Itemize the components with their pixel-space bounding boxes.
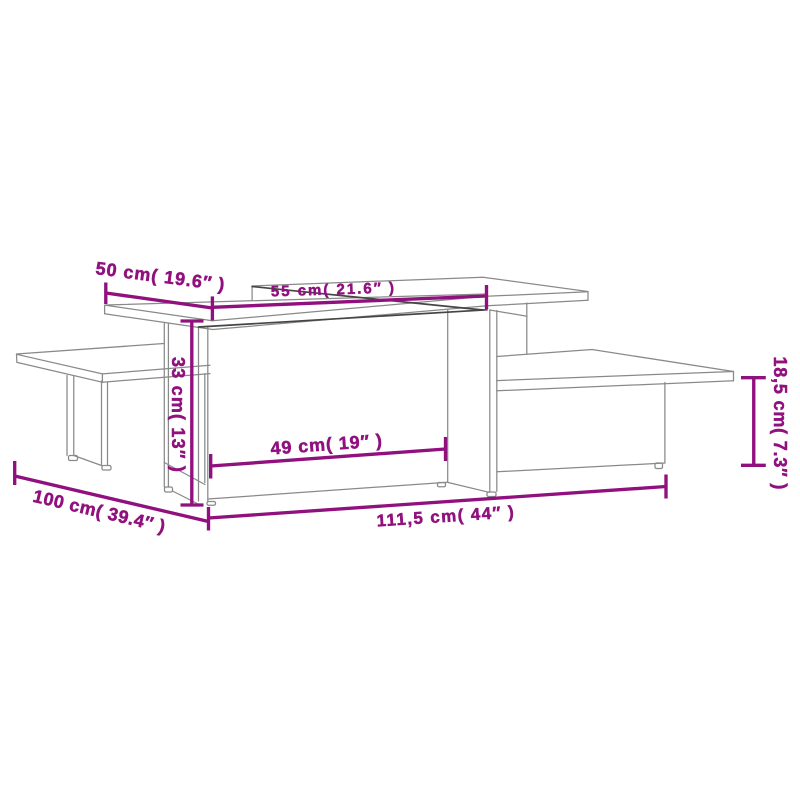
svg-text:18,5 cm( 7.3″ ): 18,5 cm( 7.3″ ) bbox=[770, 357, 790, 491]
svg-text:33 cm( 13″ ): 33 cm( 13″ ) bbox=[168, 357, 188, 473]
